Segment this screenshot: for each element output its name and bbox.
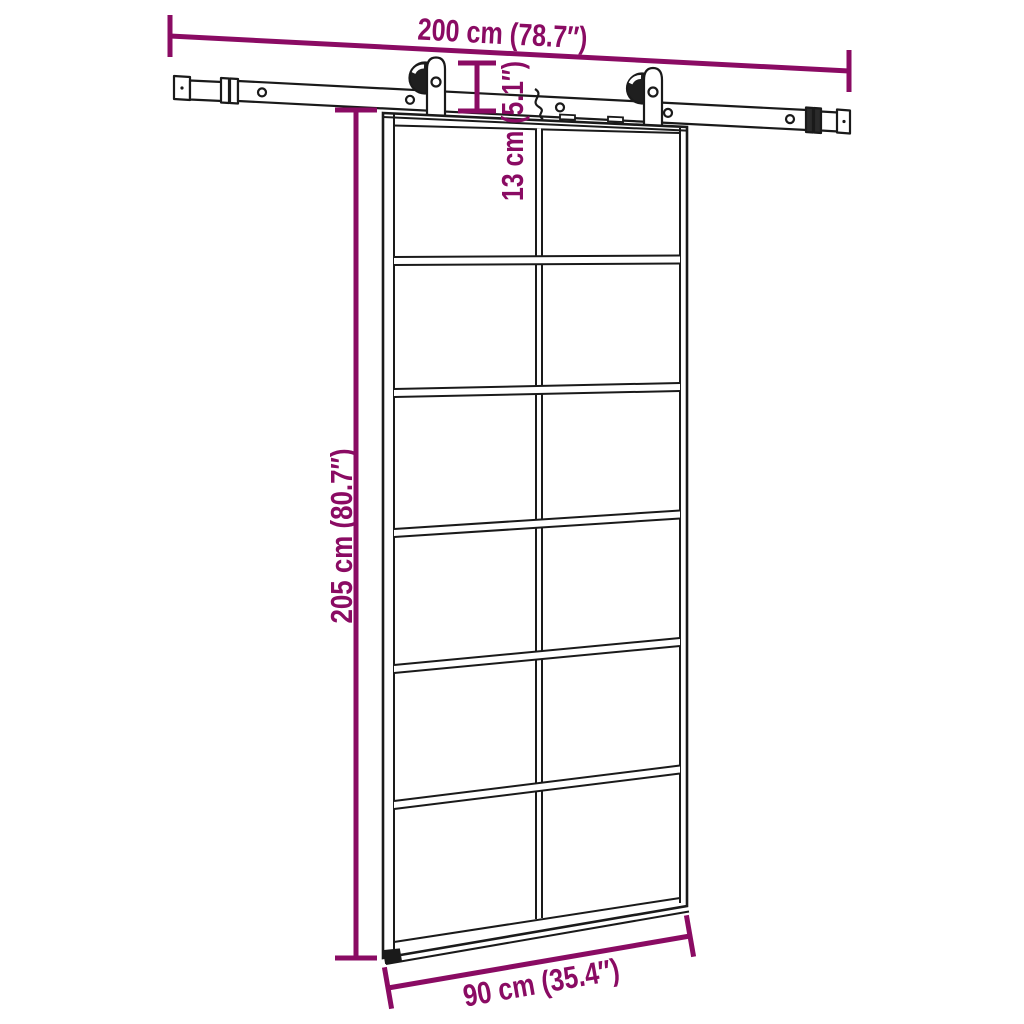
rail-screw-hole [786,115,794,123]
anti-jump-tab [608,117,623,122]
floor-guide [384,950,401,964]
glass-door [383,113,689,964]
rail-left-rod [190,81,222,102]
dimension-end-tick [384,967,391,1008]
anti-jump-tab [560,115,575,120]
rail-left-bracket-band-2 [230,79,238,104]
glass-divider [394,256,680,266]
hanger-drop-label: 13 cm (5.1″) [495,61,530,201]
door-height-label: 205 cm (80.7″) [324,449,359,624]
sliding-door-dimension-diagram: 200 cm (78.7″) 13 cm (5.1″) 205 cm (80.7… [0,0,1024,1024]
hanger-strap [644,68,662,131]
axle-bolt [432,78,441,87]
rail-left-bracket-band-1 [221,78,229,103]
roller-hanger-left [410,58,446,122]
rail-left-end-stop-pin [180,86,183,89]
rail-screw-hole [664,109,672,117]
diagram-canvas: 200 cm (78.7″) 13 cm (5.1″) 205 cm (80.7… [0,0,1024,1024]
rail-screw-hole [406,96,414,104]
dimension-door-height: 205 cm (80.7″) [324,110,377,958]
rail-screw-hole [556,103,564,111]
rail-screw-hole [258,88,266,96]
rail-right-bracket-band-1 [806,108,813,133]
rail-right-rod [821,112,838,132]
dimension-end-tick [686,915,693,956]
hanger-strap [427,58,445,122]
rail-right-end-stop-pin [842,120,845,123]
axle-bolt [649,88,658,97]
